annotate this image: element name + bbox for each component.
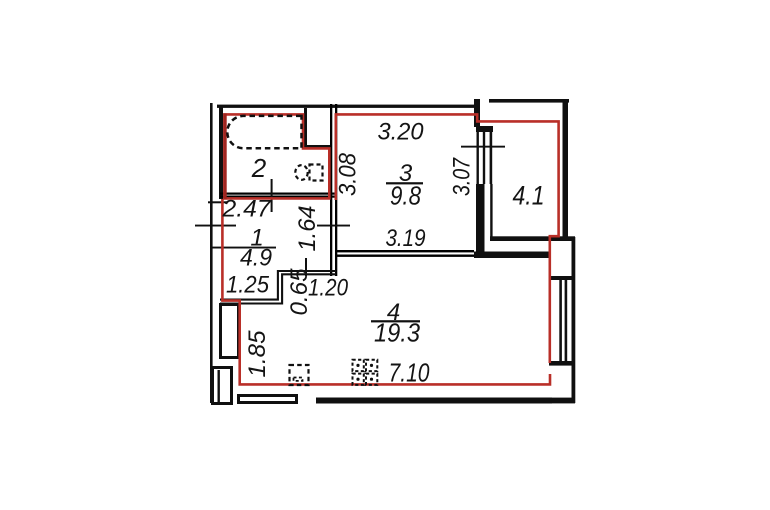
svg-text:2: 2 (251, 153, 267, 183)
svg-text:1.64: 1.64 (294, 206, 321, 252)
svg-text:19.3: 19.3 (374, 318, 420, 348)
svg-text:2.47: 2.47 (221, 196, 272, 223)
svg-text:4.9: 4.9 (240, 245, 272, 272)
svg-text:1.85: 1.85 (244, 330, 271, 378)
svg-text:3.19: 3.19 (386, 225, 426, 252)
svg-text:3.20: 3.20 (378, 119, 425, 146)
svg-text:9.8: 9.8 (390, 181, 421, 211)
svg-text:4.1: 4.1 (513, 181, 545, 211)
svg-text:3.08: 3.08 (335, 152, 362, 196)
svg-text:1.25: 1.25 (226, 272, 270, 299)
svg-text:7.10: 7.10 (389, 358, 430, 388)
svg-text:3.07: 3.07 (449, 157, 476, 196)
svg-text:1.20: 1.20 (308, 275, 349, 302)
